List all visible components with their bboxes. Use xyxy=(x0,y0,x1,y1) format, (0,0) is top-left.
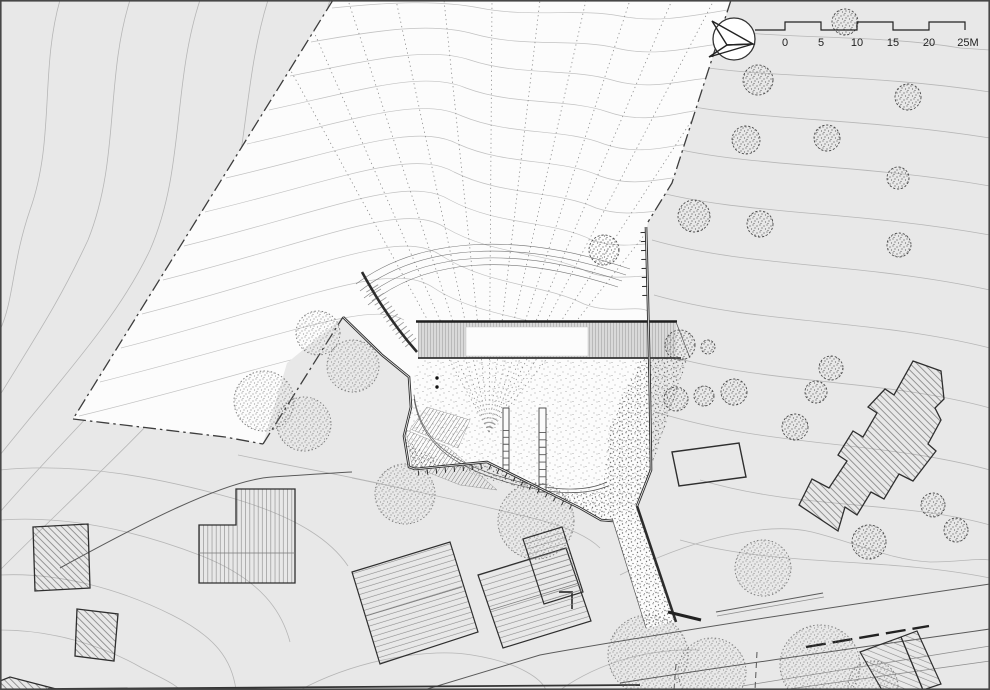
trees-round-item xyxy=(747,211,773,237)
trees-round-item xyxy=(921,493,945,517)
trees-sketchy-item xyxy=(498,483,574,559)
neighbour-buildings-item xyxy=(75,609,118,661)
trees-round-item xyxy=(814,125,840,151)
trees-round-item xyxy=(887,233,911,257)
neighbour-buildings-item xyxy=(33,524,90,591)
trees-round-item xyxy=(832,9,858,35)
trees-sketchy-item xyxy=(735,540,791,596)
trees-round-item xyxy=(819,356,843,380)
trees-sketchy-item xyxy=(277,397,331,451)
site-plan-canvas: 0510152025M xyxy=(0,0,990,690)
trees-sketchy-item xyxy=(327,340,379,392)
trees-round-item xyxy=(694,386,714,406)
trees-round-item xyxy=(895,84,921,110)
bench-dots-item xyxy=(435,385,438,388)
trees-round-item xyxy=(743,65,773,95)
site-plan-drawing: 0510152025M xyxy=(0,0,990,690)
scale-label-15: 15 xyxy=(887,37,899,49)
scale-label-5: 5 xyxy=(818,37,824,49)
trees-round-item xyxy=(782,414,808,440)
trees-round-item xyxy=(664,387,688,411)
trees-sketchy-item xyxy=(375,464,435,524)
vertical-elements-item xyxy=(539,408,546,492)
scale-label-0: 0 xyxy=(782,37,788,49)
trees-round-item xyxy=(589,235,619,265)
building-roof-item xyxy=(466,327,588,356)
vertical-elements-item xyxy=(503,408,509,470)
trees-round-item xyxy=(887,167,909,189)
trees-round-item xyxy=(701,340,715,354)
scale-label-20: 20 xyxy=(923,37,935,49)
scale-label-10: 10 xyxy=(851,37,863,49)
trees-round-item xyxy=(732,126,760,154)
trees-round-item xyxy=(665,330,695,360)
bench-dots-item xyxy=(435,376,438,379)
trees-round-item xyxy=(944,518,968,542)
trees-round-item xyxy=(721,379,747,405)
trees-round-item xyxy=(852,525,886,559)
trees-round-item xyxy=(805,381,827,403)
scale-label-25M: 25M xyxy=(957,37,978,49)
trees-round-item xyxy=(678,200,710,232)
